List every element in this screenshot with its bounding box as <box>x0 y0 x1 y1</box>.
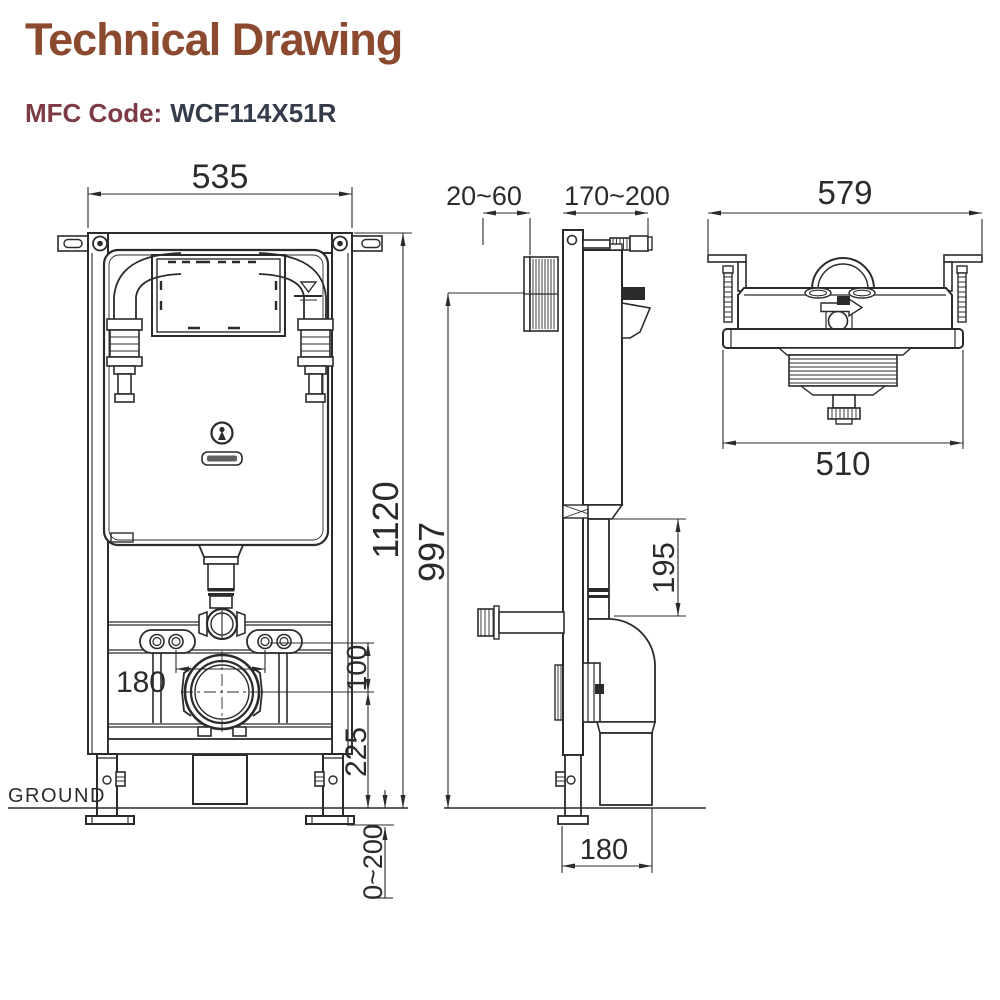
front-access-panel <box>152 255 285 336</box>
front-pipe-flange <box>199 609 245 639</box>
fixing-plate-left <box>140 630 195 653</box>
dim-outlet-offset: 100 <box>341 645 372 692</box>
flush-plate-housing <box>524 257 558 331</box>
side-foot <box>556 755 588 824</box>
front-view: GROUND 535 1120 180 100 225 0~200 <box>8 158 412 900</box>
mfc-code-value: WCF114X51R <box>170 98 336 128</box>
ground-label: GROUND <box>8 785 106 807</box>
front-bottom-bar <box>108 739 332 754</box>
dim-outlet-height: 225 <box>340 727 373 777</box>
mfc-code-label: MFC Code: <box>25 98 162 128</box>
side-drain-elbow <box>583 619 655 805</box>
fixing-plate-right <box>247 630 302 653</box>
top-flush-housing <box>779 348 911 424</box>
side-view: 20~60 170~200 997 195 180 <box>411 181 706 873</box>
top-base-plate <box>723 329 963 348</box>
side-rail <box>563 230 583 755</box>
header: Technical Drawing MFC Code:WCF114X51R <box>25 14 402 129</box>
dim-fixing-spacing: 180 <box>116 666 166 699</box>
dim-front-width: 535 <box>192 158 249 196</box>
dim-foot-range: 0~200 <box>358 824 388 900</box>
dim-top-overall-width: 579 <box>817 174 872 211</box>
dim-front-height: 1120 <box>365 481 406 558</box>
page-title: Technical Drawing <box>25 14 402 66</box>
dim-side-height: 997 <box>411 522 452 582</box>
front-flush-pipe <box>199 545 243 608</box>
side-inlet-pipe <box>478 606 564 639</box>
technical-drawing: GROUND 535 1120 180 100 225 0~200 <box>0 0 1000 1000</box>
top-view: 579 510 <box>708 174 982 482</box>
dim-outlet-drop: 195 <box>646 542 681 594</box>
mfc-code-line: MFC Code:WCF114X51R <box>25 98 402 129</box>
dim-depth-range: 170~200 <box>564 181 670 211</box>
dim-top-body-width: 510 <box>815 445 870 482</box>
dim-base-depth: 180 <box>580 834 628 866</box>
drain-outlet <box>181 651 263 736</box>
drain-template-box <box>193 755 247 804</box>
side-flush-pipe <box>588 519 609 619</box>
dim-plate-range: 20~60 <box>446 181 522 211</box>
